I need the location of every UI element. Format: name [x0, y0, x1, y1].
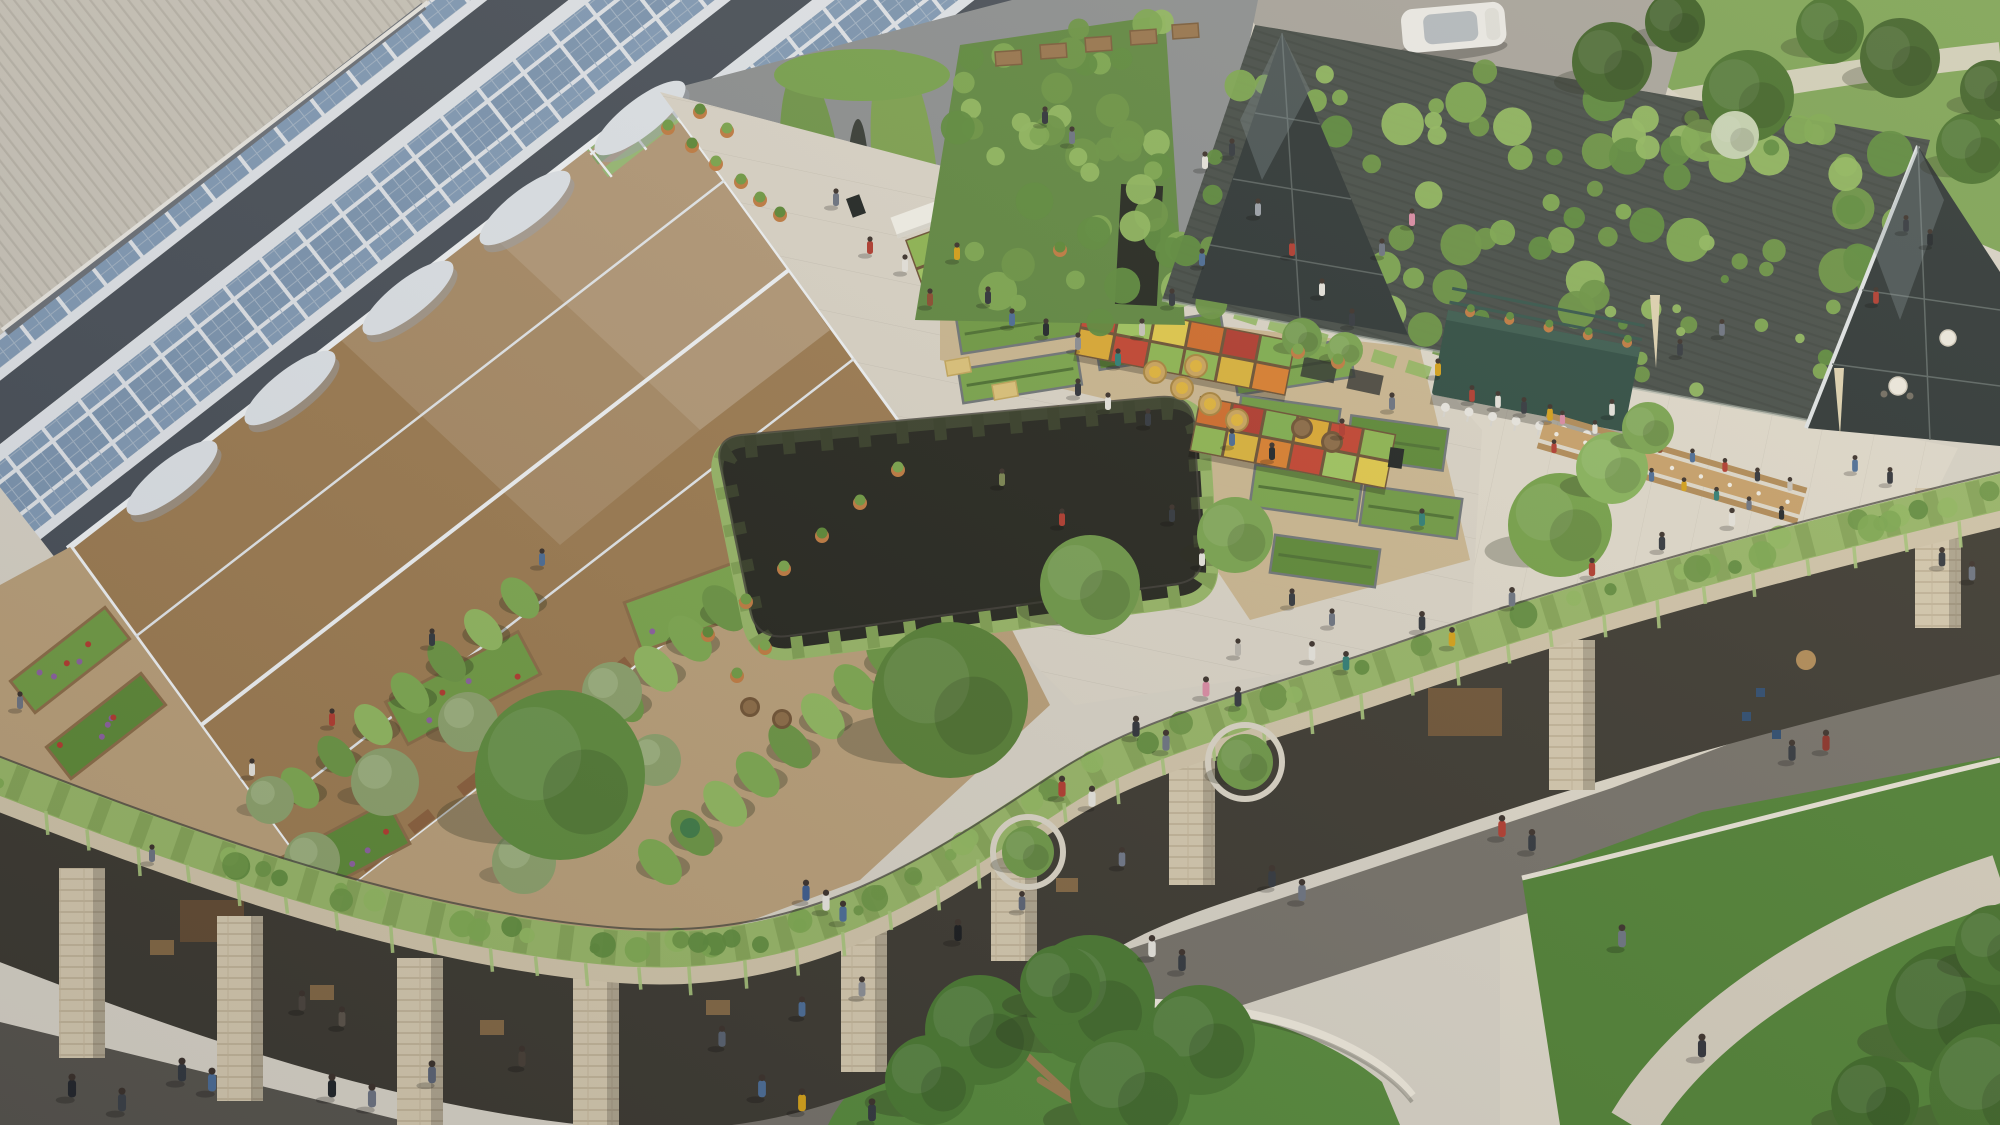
aerial-rendering: Aerial architectural rendering of a sust… — [0, 0, 2000, 1125]
rendering-stage: Aerial architectural rendering of a sust… — [0, 0, 2000, 1125]
sunlight-wash — [0, 0, 2000, 1125]
